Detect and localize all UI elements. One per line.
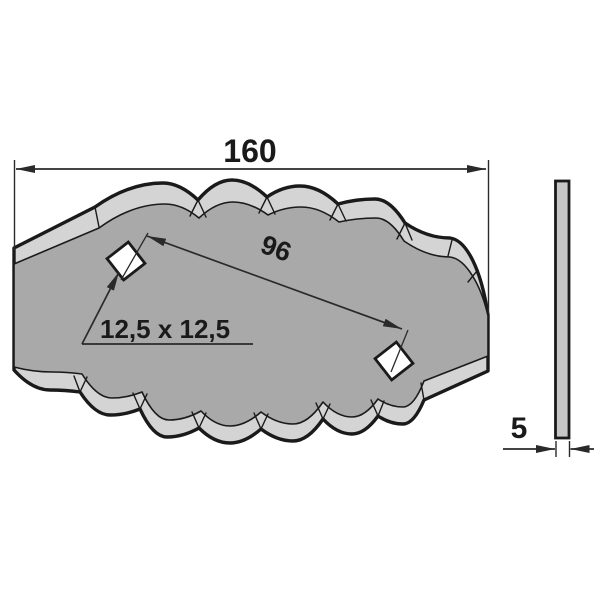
- blade-side-profile: [556, 181, 570, 438]
- drawing-svg: 160 96 12,5 x 12,5 5: [0, 0, 600, 600]
- technical-drawing-canvas: 160 96 12,5 x 12,5 5: [0, 0, 600, 600]
- dimension-thickness-5: 5: [503, 412, 594, 457]
- dimension-hole-size-label: 12,5 x 12,5: [100, 314, 230, 344]
- dimension-thickness-label: 5: [511, 412, 528, 445]
- dimension-width-label: 160: [223, 133, 276, 169]
- front-view: [14, 180, 488, 443]
- side-view: 5: [503, 181, 594, 457]
